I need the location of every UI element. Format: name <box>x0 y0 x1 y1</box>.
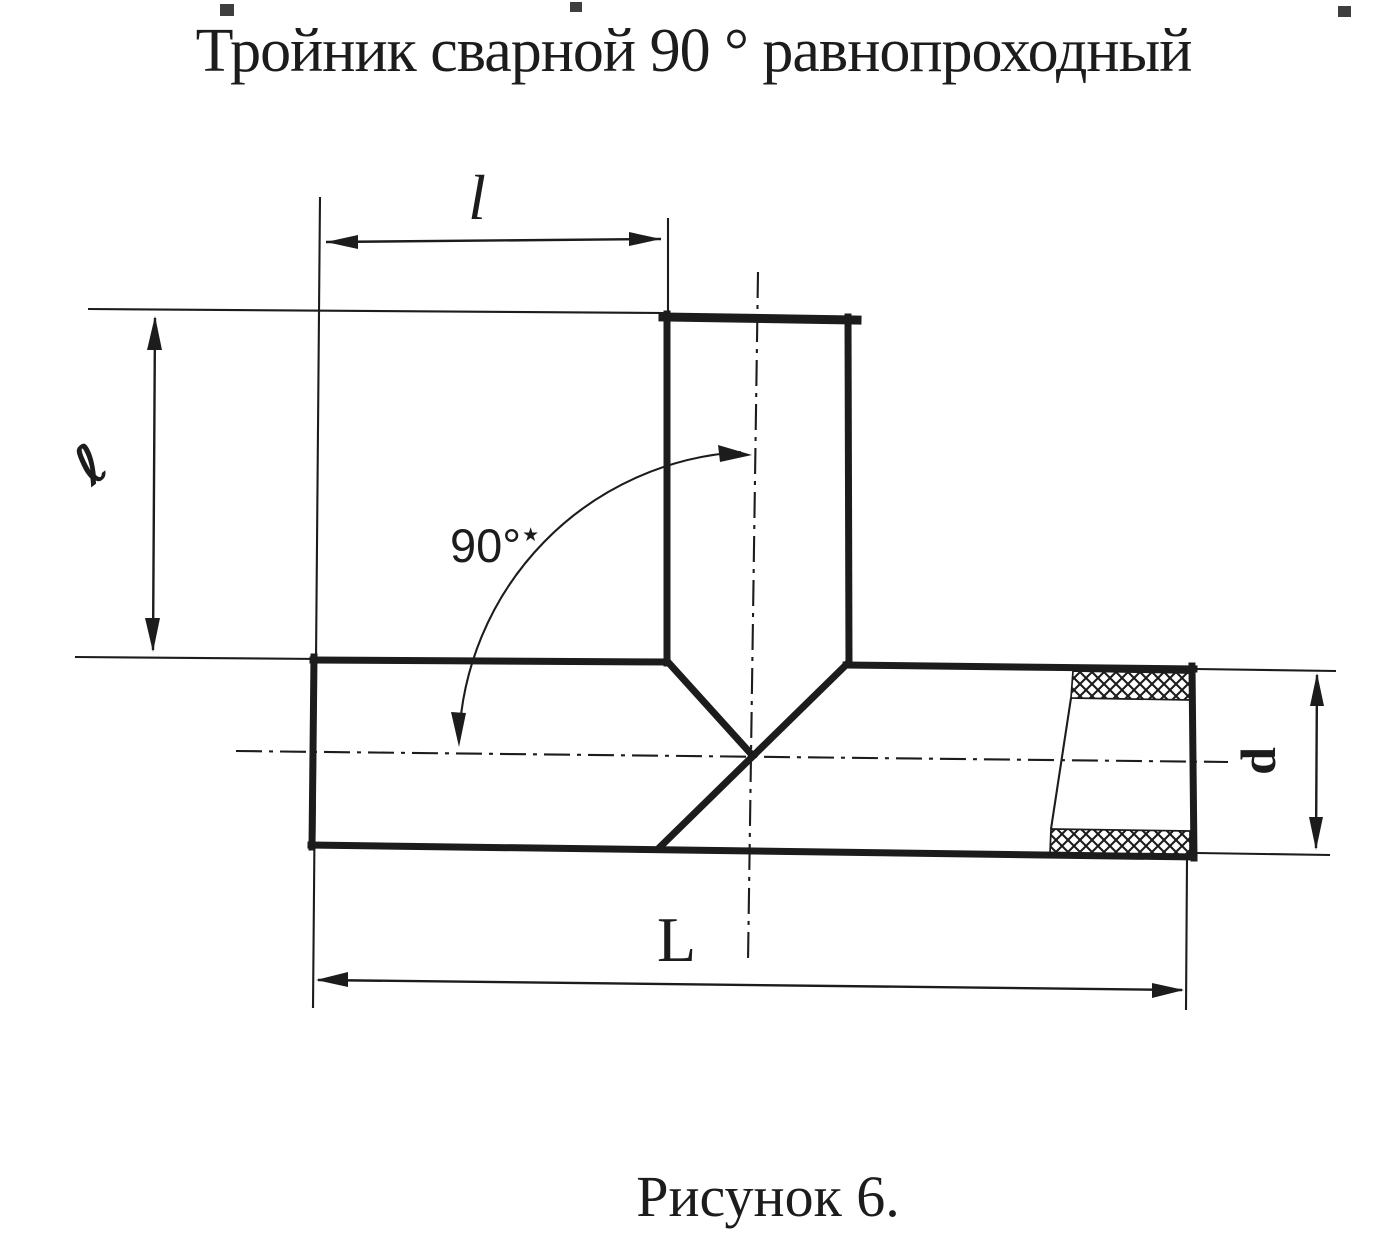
coupling-hatch-top <box>1071 671 1190 700</box>
figure-caption: Рисунок 6. <box>636 1168 900 1226</box>
branch-pipe-outline <box>663 314 857 665</box>
coupling-hatch-bottom <box>1050 829 1190 855</box>
pipe-end-coupling <box>1050 671 1190 855</box>
tee-fitting-drawing <box>0 0 1387 1242</box>
label-angle-90: 90°★ <box>450 522 538 569</box>
coupling-bevel-line <box>1051 698 1071 829</box>
weld-seam-lines <box>661 661 847 846</box>
centerline-vertical <box>748 272 758 962</box>
dimension-l <box>326 232 661 249</box>
label-overall-length-L: L <box>657 908 696 972</box>
dimension-L <box>316 972 1184 998</box>
centerline-horizontal <box>236 751 1228 762</box>
angle-value: 90° <box>450 519 521 572</box>
label-branch-length-l: l <box>442 166 512 230</box>
drawing-sheet: Тройник сварной 90 ° равнопроходный <box>0 0 1387 1242</box>
dimension-ell <box>145 316 162 652</box>
scan-artifacts <box>220 2 1351 17</box>
angle-footnote-marker: ★ <box>522 525 539 546</box>
dimension-d <box>1309 673 1324 850</box>
label-diameter-d: d <box>1233 747 1283 775</box>
